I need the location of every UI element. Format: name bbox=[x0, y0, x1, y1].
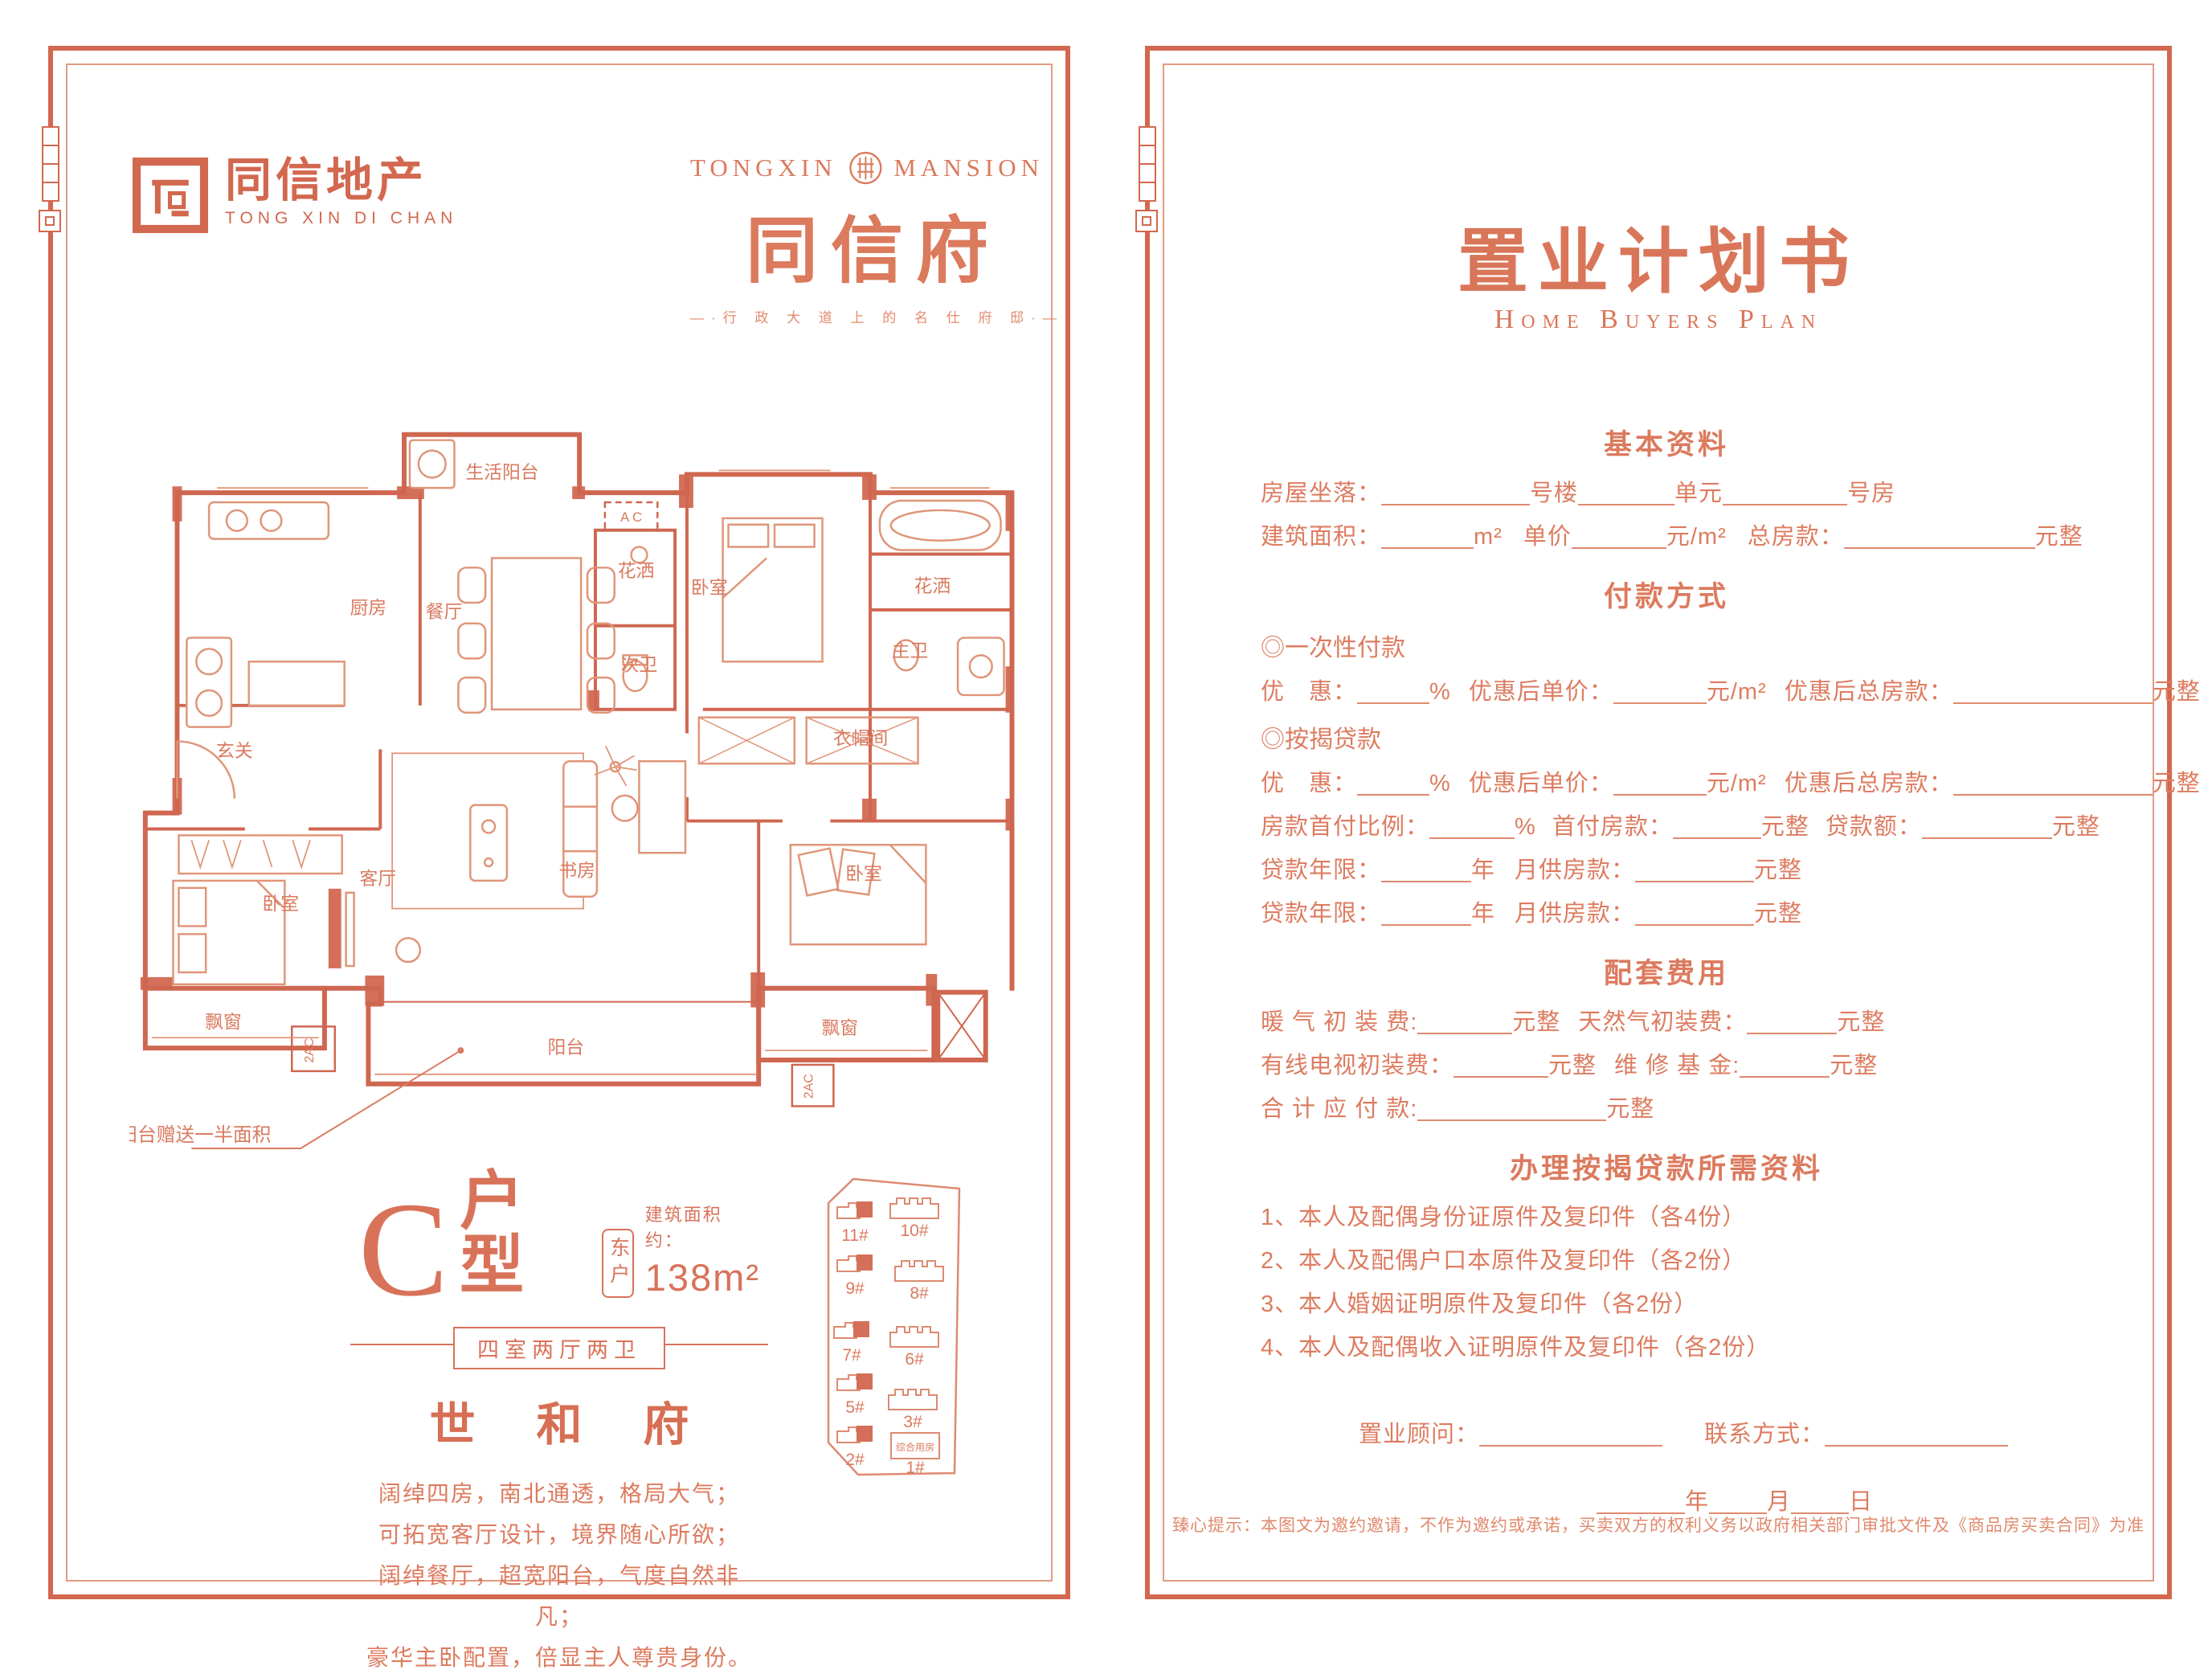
field-label: 元整 bbox=[2052, 814, 2100, 840]
building-number: 5# bbox=[845, 1398, 865, 1417]
section-payment: 付款方式 bbox=[1261, 574, 2072, 615]
field-label: 贷款额： bbox=[1826, 814, 1922, 840]
field-label: 贷款年限： bbox=[1261, 901, 1381, 927]
disclaimer: 臻心提示：本图文为邀约邀请，不作为邀约或承诺，买卖双方的权利义务以政府相关部门审… bbox=[1150, 1512, 2167, 1537]
unit-type-label: 户型 bbox=[460, 1169, 591, 1303]
building-number: 6# bbox=[905, 1350, 924, 1369]
field-label: 号楼 bbox=[1530, 481, 1578, 506]
blank-field bbox=[1635, 902, 1754, 926]
field-label: m² bbox=[1474, 524, 1503, 550]
room-label-cloakroom: 衣帽间 bbox=[833, 727, 888, 748]
field-label: 年 bbox=[1685, 1489, 1709, 1515]
blank-field bbox=[1635, 858, 1754, 882]
field-label: 房款首付比例： bbox=[1261, 814, 1429, 840]
room-label-bedroom-north: 卧室 bbox=[691, 577, 728, 598]
form-line: 贷款年限：年月供房款：元整 bbox=[1261, 894, 2072, 928]
field-label: 总房款： bbox=[1748, 524, 1844, 550]
blank-field bbox=[1357, 771, 1429, 796]
field-label: 房屋坐落： bbox=[1261, 481, 1381, 506]
room-label-ac-southwest: 2AC bbox=[303, 1038, 317, 1063]
field-label: 元整 bbox=[1837, 1009, 1885, 1035]
section-fees: 配套费用 bbox=[1261, 951, 2072, 992]
blank-field bbox=[1709, 1490, 1767, 1514]
blank-field bbox=[1578, 481, 1674, 505]
layout-tag: 四室两厅两卫 bbox=[453, 1327, 665, 1369]
building-number: 10# bbox=[900, 1222, 928, 1240]
developer-name-en: TONG XIN DI CHAN bbox=[225, 209, 457, 228]
balcony-annotation: 阳台赠送一半面积 bbox=[129, 1047, 464, 1148]
form-line: 2、本人及配偶户口本原件及复印件（各2份） bbox=[1261, 1242, 2072, 1275]
form-line: 置业顾问：联系方式： bbox=[1359, 1415, 2072, 1449]
room-label-bay-window-east: 飘窗 bbox=[822, 1017, 859, 1038]
blank-field bbox=[1454, 1054, 1548, 1078]
room-label-shower-second: 花洒 bbox=[618, 560, 655, 581]
room-label-second-bath: 次卫 bbox=[621, 654, 658, 675]
field-label: 元整 bbox=[1754, 857, 1802, 883]
field-label: 首付房款： bbox=[1552, 814, 1673, 840]
area-value: 138m² bbox=[645, 1255, 760, 1299]
form-line: 暖 气 初 装 费:元整天然气初装费：元整 bbox=[1261, 1003, 2072, 1037]
building-1: 综合用房1# bbox=[891, 1433, 939, 1477]
field-label: 维 修 基 金: bbox=[1614, 1053, 1740, 1078]
field-label: 号房 bbox=[1847, 481, 1895, 506]
project-name: 同信府 bbox=[690, 192, 1044, 297]
project-tagline: —·行 政 大 道 上 的 名 仕 府 邸·— bbox=[690, 306, 1044, 326]
form-line: 优 惠：%优惠后单价：元/m²优惠后总房款：元整 bbox=[1261, 764, 2072, 798]
field-label: 元/m² bbox=[1666, 524, 1727, 550]
field-label: 年 bbox=[1471, 901, 1495, 927]
room-label-life-balcony: 生活阳台 bbox=[465, 461, 538, 482]
building-number: 11# bbox=[841, 1226, 869, 1245]
blank-field bbox=[1825, 1422, 2008, 1447]
room-label-foyer: 玄关 bbox=[216, 740, 253, 761]
room-label-bedroom-west: 卧室 bbox=[263, 894, 300, 915]
blank-field bbox=[1479, 1422, 1662, 1447]
field-label: 元整 bbox=[1512, 1009, 1560, 1035]
blank-field bbox=[1791, 1490, 1849, 1514]
building-8: 8# bbox=[895, 1261, 943, 1303]
building-11: 11# bbox=[837, 1201, 873, 1245]
field-label: 置业顾问： bbox=[1359, 1422, 1479, 1447]
building-10: 10# bbox=[890, 1198, 938, 1240]
form-line: 贷款年限：年月供房款：元整 bbox=[1261, 851, 2072, 885]
brand-seal-icon bbox=[848, 145, 883, 190]
brand-en-right: MANSION bbox=[893, 153, 1044, 182]
blank-field bbox=[1381, 481, 1530, 505]
feature-line: 阔绰四房，南北通透，格局大气； bbox=[358, 1473, 760, 1514]
field-label: 贷款年限： bbox=[1261, 857, 1381, 883]
form-line: 1、本人及配偶身份证原件及复印件（各4份） bbox=[1261, 1198, 2072, 1232]
developer-logo: 同信地产 TONG XIN DI CHAN bbox=[132, 157, 457, 234]
blank-field bbox=[1417, 1010, 1512, 1034]
room-label-living: 客厅 bbox=[360, 868, 397, 889]
room-label-bay-window-west: 飘窗 bbox=[205, 1011, 242, 1032]
blank-field bbox=[1953, 680, 2153, 704]
blank-field bbox=[1740, 1054, 1830, 1078]
field-label: 元整 bbox=[1606, 1096, 1654, 1122]
field-label: 1、本人及配偶身份证原件及复印件（各4份） bbox=[1261, 1205, 1746, 1230]
purchase-form: 基本资料房屋坐落：号楼单元号房建筑面积：m²单价元/m²总房款：元整付款方式◎一… bbox=[1261, 422, 2072, 1526]
blank-field bbox=[1429, 815, 1515, 839]
form-line: 优 惠：%优惠后单价：元/m²优惠后总房款：元整 bbox=[1261, 673, 2072, 706]
field-label: 优惠后单价： bbox=[1469, 771, 1613, 796]
blank-field bbox=[1723, 481, 1847, 505]
field-label: 联系方式： bbox=[1704, 1422, 1825, 1447]
building-7: 7# bbox=[834, 1321, 869, 1365]
building-5: 5# bbox=[837, 1373, 873, 1417]
field-label: 天然气初装费： bbox=[1578, 1009, 1747, 1035]
field-label: 优惠后单价： bbox=[1469, 679, 1613, 705]
blank-field bbox=[1613, 771, 1707, 796]
section-basic-info: 基本资料 bbox=[1261, 422, 2072, 463]
feature-line: 可拓宽客厅设计，境界随心所欲； bbox=[358, 1514, 760, 1555]
feature-line: 阔绰餐厅，超宽阳台，气度自然非凡； bbox=[358, 1555, 760, 1637]
room-label-study: 书房 bbox=[558, 860, 595, 881]
room-label-dining: 餐厅 bbox=[426, 601, 463, 622]
form-line: 年月日 bbox=[1597, 1483, 2072, 1516]
field-label: 合 计 应 付 款: bbox=[1261, 1096, 1417, 1122]
field-label: 月供房款： bbox=[1515, 857, 1635, 883]
field-label: 元/m² bbox=[1707, 679, 1767, 705]
unit-side-tag: 东户 bbox=[602, 1229, 634, 1298]
field-label: 元整 bbox=[2153, 771, 2201, 796]
developer-logo-icon bbox=[132, 157, 209, 234]
brand-en-left: TONGXIN bbox=[690, 153, 837, 182]
building-number: 7# bbox=[842, 1346, 861, 1365]
field-label: 4、本人及配偶收入证明原件及复印件（各2份） bbox=[1261, 1335, 1770, 1361]
blank-field bbox=[1673, 815, 1761, 839]
plan-page: 置业计划书 Home Buyers Plan 基本资料房屋坐落：号楼单元号房建筑… bbox=[1145, 46, 2172, 1599]
field-label: 优 惠： bbox=[1261, 771, 1357, 796]
blank-field bbox=[1572, 525, 1666, 549]
building-number: 3# bbox=[903, 1413, 922, 1431]
page-subtitle: Home Buyers Plan bbox=[1150, 305, 2167, 335]
field-label: 年 bbox=[1471, 857, 1495, 883]
building-9: 9# bbox=[837, 1254, 873, 1298]
field-label: % bbox=[1429, 679, 1451, 705]
feature-list: 阔绰四房，南北通透，格局大气；可拓宽客厅设计，境界随心所欲；阔绰餐厅，超宽阳台，… bbox=[358, 1473, 760, 1678]
developer-name-cn: 同信地产 bbox=[225, 157, 457, 206]
field-label: 暖 气 初 装 费: bbox=[1261, 1009, 1417, 1035]
field-label: 元整 bbox=[1830, 1053, 1878, 1078]
field-label: % bbox=[1515, 814, 1536, 840]
field-label: 建筑面积： bbox=[1261, 524, 1381, 550]
unit-info: C 户型 东户 建筑面积约： 138m² 四室两厅两卫 世 和 府 阔绰四房，南… bbox=[358, 1169, 760, 1678]
area-note: 建筑面积约： bbox=[645, 1201, 760, 1252]
annotation-text: 阳台赠送一半面积 bbox=[129, 1124, 271, 1146]
form-line: 房款首付比例：%首付房款：元整贷款额：元整 bbox=[1261, 808, 2072, 841]
room-label-master-bath: 主卫 bbox=[892, 640, 929, 661]
field-label: 有线电视初装费： bbox=[1261, 1053, 1454, 1078]
building-box-label: 综合用房 bbox=[896, 1441, 934, 1453]
room-label-shower-master: 花洒 bbox=[914, 575, 951, 596]
form-line: 房屋坐落：号楼单元号房 bbox=[1261, 474, 2072, 508]
field-label: 优惠后总房款： bbox=[1785, 771, 1953, 796]
building-number: 9# bbox=[845, 1279, 865, 1298]
field-label: 元整 bbox=[1754, 901, 1802, 927]
community-name: 世 和 府 bbox=[358, 1388, 760, 1454]
building-number: 2# bbox=[845, 1451, 865, 1469]
building-number: 8# bbox=[910, 1284, 929, 1303]
field-label: 月供房款： bbox=[1515, 901, 1635, 927]
subsection-label: ◎按揭贷款 bbox=[1261, 719, 2072, 755]
blank-field bbox=[1953, 771, 2153, 796]
site-plan: 11#10#9#8#7#6#5#3#2#综合用房1# bbox=[816, 1154, 1057, 1524]
field-label: 单元 bbox=[1674, 481, 1723, 506]
corner-ornament-icon bbox=[42, 128, 59, 232]
blank-field bbox=[1357, 680, 1429, 704]
room-label-ac-north: A C bbox=[620, 510, 642, 525]
room-label-bedroom-southeast: 卧室 bbox=[845, 863, 882, 884]
field-label: 元整 bbox=[1761, 814, 1809, 840]
subsection-label: ◎一次性付款 bbox=[1261, 628, 2072, 663]
field-label: 元/m² bbox=[1707, 771, 1767, 796]
project-brand: TONGXIN MANSION 同信府 —·行 政 大 道 上 的 名 仕 府 … bbox=[690, 145, 1044, 326]
furniture bbox=[152, 440, 1004, 1074]
unit-letter: C bbox=[358, 1197, 448, 1303]
blank-field bbox=[1747, 1010, 1837, 1034]
field-label: 3、本人婚姻证明原件及复印件（各2份） bbox=[1261, 1291, 1698, 1317]
form-line: 有线电视初装费：元整维 修 基 金:元整 bbox=[1261, 1046, 2072, 1080]
form-line: 建筑面积：m²单价元/m²总房款：元整 bbox=[1261, 518, 2072, 551]
form-line: 4、本人及配偶收入证明原件及复印件（各2份） bbox=[1261, 1328, 2072, 1362]
blank-field bbox=[1597, 1490, 1685, 1514]
floor-plan: 生活阳台厨房餐厅A C花洒次卫卧室花洒主卫衣帽间玄关卧室客厅书房卧室飘窗飘窗阳台… bbox=[129, 399, 1053, 1164]
blank-field bbox=[1381, 525, 1474, 549]
field-label: 元整 bbox=[1548, 1053, 1597, 1078]
field-label: % bbox=[1429, 771, 1451, 796]
field-label: 优惠后总房款： bbox=[1785, 679, 1953, 705]
field-label: 日 bbox=[1849, 1489, 1873, 1515]
field-label: 2、本人及配偶户口本原件及复印件（各2份） bbox=[1261, 1248, 1746, 1274]
blank-field bbox=[1844, 525, 2035, 549]
floorplan-page: 同信地产 TONG XIN DI CHAN TONGXIN MANSION 同信… bbox=[48, 46, 1070, 1599]
room-label-ac-southeast: 2AC bbox=[803, 1074, 816, 1099]
section-docs: 办理按揭贷款所需资料 bbox=[1261, 1146, 2072, 1187]
form-line: 3、本人婚姻证明原件及复印件（各2份） bbox=[1261, 1285, 2072, 1319]
field-label: 优 惠： bbox=[1261, 679, 1357, 705]
field-label: 元整 bbox=[2153, 679, 2201, 705]
blank-field bbox=[1381, 858, 1471, 882]
page-title: 置业计划书 bbox=[1150, 205, 2167, 307]
building-2: 2# bbox=[837, 1426, 873, 1469]
field-label: 单价 bbox=[1523, 524, 1572, 550]
blank-field bbox=[1613, 680, 1707, 704]
brochure: 同信地产 TONG XIN DI CHAN TONGXIN MANSION 同信… bbox=[0, 0, 2212, 1643]
building-3: 3# bbox=[889, 1389, 937, 1431]
blank-field bbox=[1417, 1097, 1606, 1121]
field-label: 元整 bbox=[2035, 524, 2083, 550]
site-buildings: 11#10#9#8#7#6#5#3#2#综合用房1# bbox=[834, 1198, 943, 1477]
blank-field bbox=[1381, 902, 1471, 926]
room-label-balcony: 阳台 bbox=[547, 1037, 584, 1058]
form-line: 合 计 应 付 款:元整 bbox=[1261, 1090, 2072, 1123]
feature-line: 豪华主卧配置，倍显主人尊贵身份。 bbox=[358, 1637, 760, 1678]
building-number: 1# bbox=[906, 1459, 925, 1477]
room-label-kitchen: 厨房 bbox=[350, 597, 387, 618]
blank-field bbox=[1922, 815, 2052, 839]
building-6: 6# bbox=[890, 1327, 938, 1369]
field-label: 月 bbox=[1767, 1489, 1791, 1515]
